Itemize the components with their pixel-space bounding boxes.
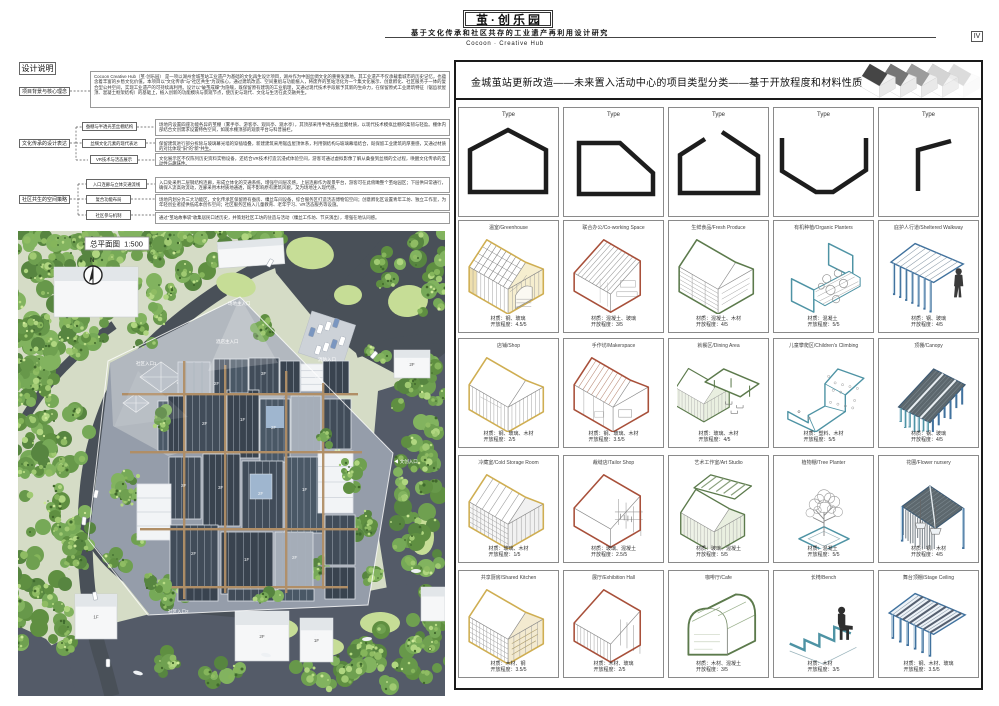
svg-text:2F: 2F <box>214 381 220 386</box>
svg-text:社区入口1: 社区入口1 <box>136 360 157 367</box>
svg-text:1F: 1F <box>314 633 320 638</box>
svg-text:2F: 2F <box>202 421 208 426</box>
svg-text:总平面图 1:500: 总平面图 1:500 <box>90 239 143 249</box>
svg-text:3F: 3F <box>151 507 157 512</box>
svg-text:2F: 2F <box>191 551 197 556</box>
svg-text:酒店主入口: 酒店主入口 <box>216 338 239 345</box>
svg-text:场地主入口: 场地主入口 <box>228 300 251 307</box>
svg-text:2F: 2F <box>333 477 339 482</box>
svg-text:2F: 2F <box>258 491 264 496</box>
svg-text:◀ 文创入口: ◀ 文创入口 <box>394 458 418 465</box>
svg-text:2F: 2F <box>314 375 320 380</box>
svg-text:1F: 1F <box>244 557 250 562</box>
svg-text:1F: 1F <box>302 487 308 492</box>
svg-text:1F: 1F <box>314 638 320 643</box>
svg-text:2F: 2F <box>181 483 187 488</box>
svg-text:2F: 2F <box>258 629 264 634</box>
svg-text:2F: 2F <box>271 425 277 430</box>
svg-text:2F: 2F <box>407 358 413 363</box>
svg-text:1F: 1F <box>240 417 246 422</box>
svg-text:2F: 2F <box>259 634 265 639</box>
svg-text:3F: 3F <box>261 371 267 376</box>
svg-text:2F: 2F <box>292 555 298 560</box>
svg-text:社区入口2: 社区入口2 <box>168 608 189 615</box>
svg-text:消防入口: 消防入口 <box>318 356 336 363</box>
svg-text:N: N <box>90 258 94 264</box>
svg-text:3F: 3F <box>218 485 224 490</box>
svg-text:1F: 1F <box>93 611 99 616</box>
